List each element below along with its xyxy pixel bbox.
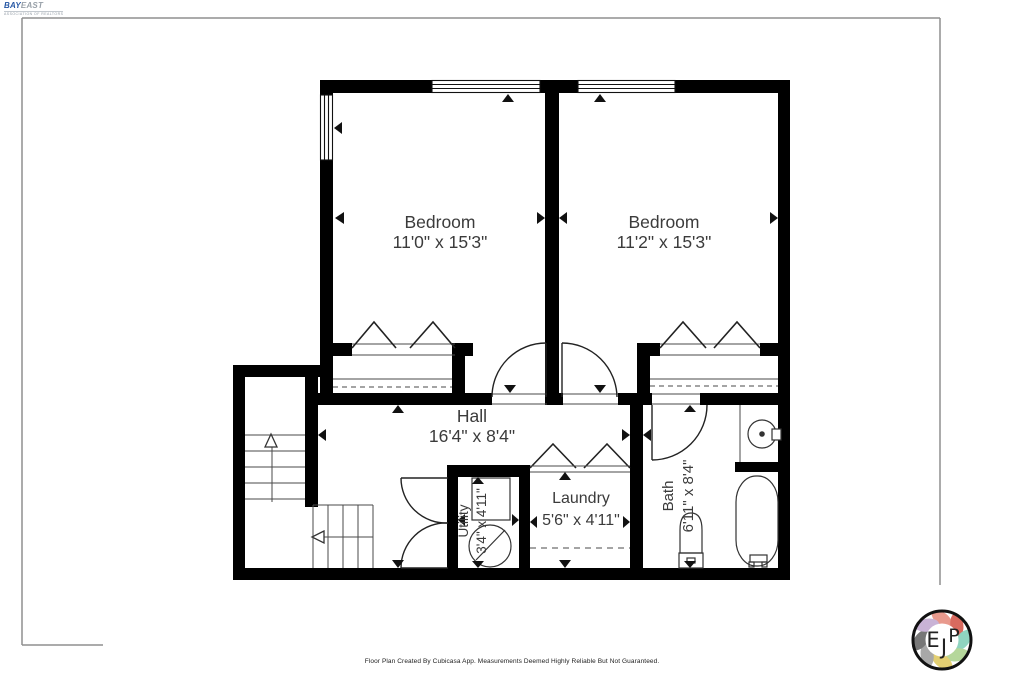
window-bedroom-left-side (321, 95, 333, 160)
bifold-laundry (530, 444, 576, 468)
door-bedroom-right (562, 343, 617, 397)
room-label-bedroom-right: Bedroom (628, 212, 699, 232)
room-dims-bedroom-right: 11'2" x 15'3" (617, 232, 712, 252)
floor-plan: Bedroom 11'0" x 15'3" Bedroom 11'2" x 15… (0, 0, 1024, 683)
room-dims-laundry: 5'6" x 4'11" (542, 512, 620, 529)
stairs-left-arrow (312, 531, 324, 543)
room-label-hall: Hall (457, 406, 487, 426)
room-dims-hall: 16'4" x 8'4" (429, 426, 515, 446)
ejp-letter-e: E (926, 628, 939, 652)
ejp-letter-p: P (948, 625, 959, 647)
room-label-bath: Bath (660, 481, 677, 512)
room-label-bedroom-left: Bedroom (404, 212, 475, 232)
room-label-laundry: Laundry (552, 490, 610, 507)
ejp-letter-j: J (939, 635, 947, 659)
door-thresholds (492, 394, 700, 404)
door-bath (652, 405, 707, 460)
disclaimer-text: Floor Plan Created By Cubicasa App. Meas… (0, 658, 1024, 665)
floor-plan-page: BAYEAST ASSOCIATION OF REALTORS (0, 0, 1024, 683)
double-doors-hall-closet (401, 478, 448, 568)
room-dims-utility: 3'4" x 4'11" (474, 488, 489, 554)
sink-icon (748, 420, 781, 448)
room-dims-bath: 6'11" x 8'4" (680, 460, 697, 533)
room-dims-bedroom-left: 11'0" x 15'3" (393, 232, 488, 252)
stairs-up-arrow (265, 434, 277, 447)
door-bedroom-left (492, 343, 546, 397)
window-bedroom-left-top (432, 81, 540, 93)
bathtub-icon (736, 476, 778, 567)
ejp-logo: E J P (907, 605, 977, 675)
window-bedroom-right-top (578, 81, 675, 93)
room-label-utility: Utility (456, 504, 471, 537)
